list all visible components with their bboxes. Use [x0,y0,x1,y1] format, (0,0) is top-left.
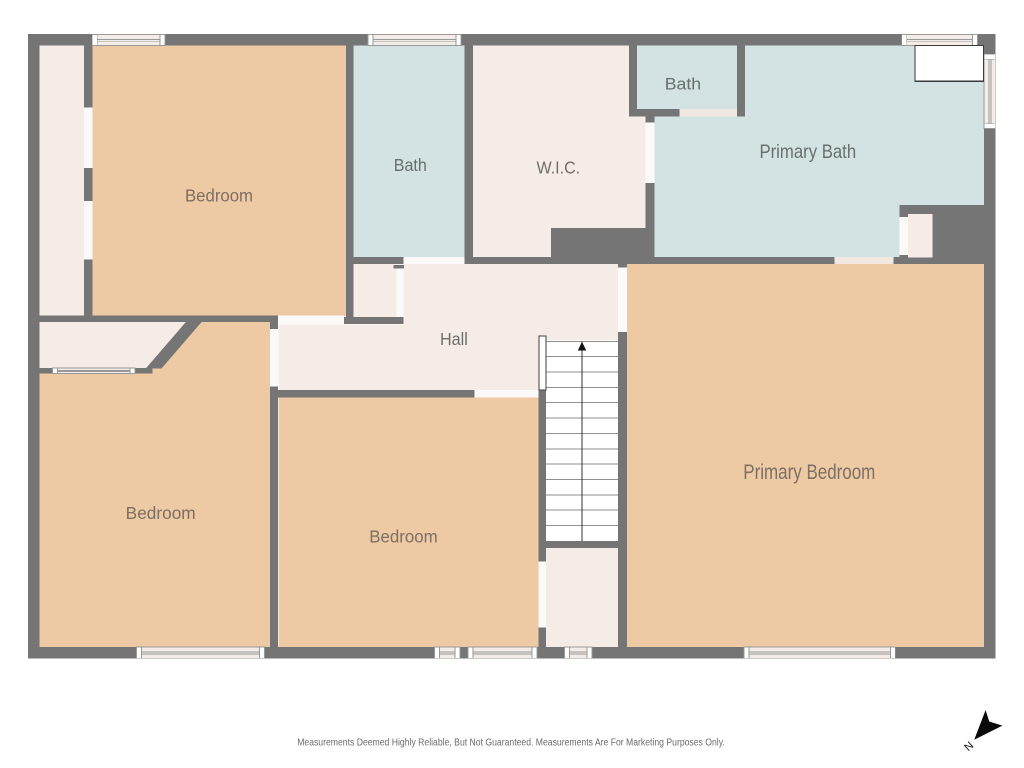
svg-text:Primary Bath: Primary Bath [759,141,856,163]
svg-text:Primary Bedroom: Primary Bedroom [743,460,875,484]
svg-text:Bedroom: Bedroom [126,503,196,523]
svg-text:Bedroom: Bedroom [369,527,438,547]
svg-text:Hall: Hall [440,329,468,349]
svg-text:W.I.C.: W.I.C. [536,158,580,178]
svg-text:Bath: Bath [665,75,701,93]
svg-text:N: N [962,740,976,754]
svg-text:Measurements Deemed Highly Rel: Measurements Deemed Highly Reliable, But… [297,737,725,749]
svg-text:Bedroom: Bedroom [185,186,253,206]
svg-text:Bath: Bath [394,155,427,175]
